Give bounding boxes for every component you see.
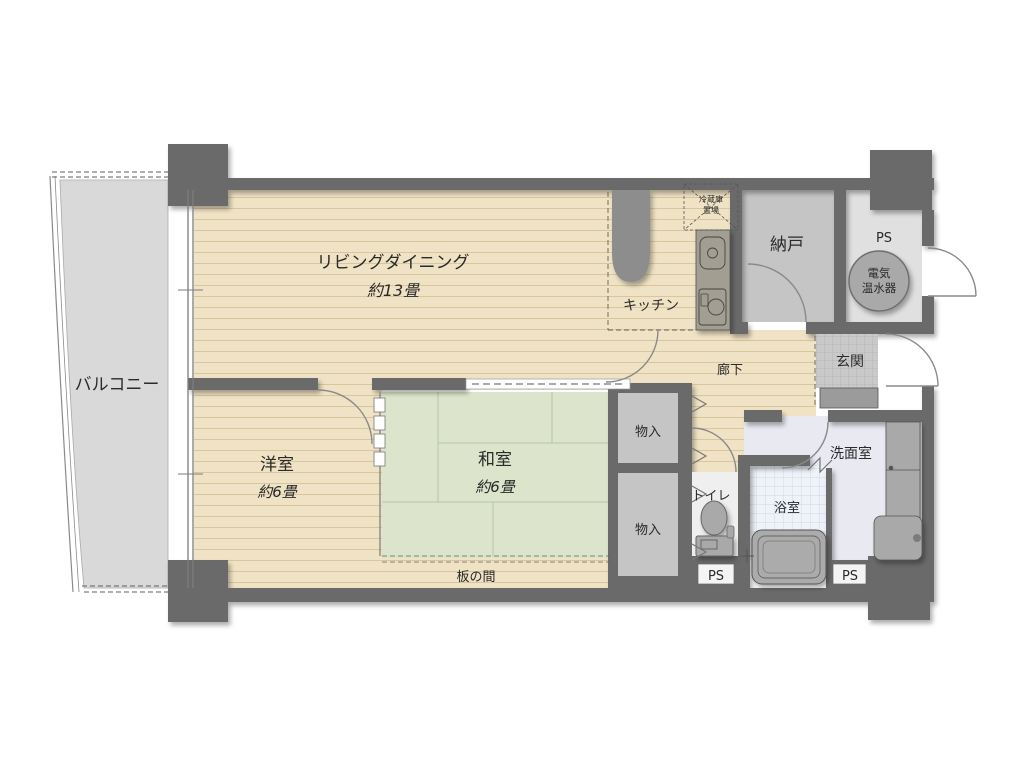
pantry-label: 納戸 [770,235,804,255]
wall-pantry-bottom-left [730,322,748,334]
japanese-room-floor [382,392,610,558]
wall-washroom-top-left [744,410,782,422]
living-dining-size: 約13畳 [367,281,420,300]
washroom-label: 洗面室 [830,445,872,462]
fridge-label-line2: 置場 [703,205,719,215]
fusuma-panel-4 [374,452,385,466]
entrance-label: 玄関 [836,353,864,370]
floor-plan-page: バルコニー リビングダイニング 約13畳 キッチン 冷蔵庫 置場 納戸 PS 電… [0,0,1024,768]
washer-drain [913,534,921,542]
wall-pantry-bottom-right [806,322,934,334]
itanoma-floor [382,556,610,588]
ps-toilet-label: PS [708,569,724,584]
corridor-floor-upper [608,330,816,388]
wall-bottom [168,588,934,602]
toilet-bowl [701,501,727,535]
living-dining-label: リビングダイニング [317,253,470,273]
kitchen-partition-wall [612,190,650,282]
toilet-label: トイレ [691,489,730,504]
wall-kitchen-pantry [730,178,742,334]
toilet-tank [696,536,733,556]
kitchen-label: キッチン [623,298,679,314]
closet-top-label: 物入 [635,425,661,440]
door-arc-front-entrance [886,334,938,386]
ps-washroom-label: PS [842,569,858,584]
wall-right-a [922,210,934,246]
wall-ld-west [188,378,318,390]
vanity-handle [889,466,894,471]
fusuma-panel-1 [374,398,385,412]
fusuma-panel-3 [374,434,385,448]
wall-top [168,178,934,190]
floor-plan-drawing: バルコニー リビングダイニング 約13畳 キッチン 冷蔵庫 置場 納戸 PS 電… [0,0,1024,768]
fusuma-panel-2 [374,416,385,430]
wall-pantry-ps [834,178,846,334]
bath-label: 浴室 [774,500,800,516]
water-heater-label-line1: 電気 [868,266,891,280]
wall-right-c [922,386,934,588]
balcony-top-boundary [52,172,168,177]
japanese-room-size: 約6畳 [475,478,516,496]
wall-bath-left [738,455,750,590]
column-top-left [168,144,228,206]
shoe-cabinet [820,388,878,408]
water-heater-label-line2: 温水器 [862,281,897,295]
bath-floor [750,466,828,532]
wall-ld-mid [372,378,466,390]
itanoma-label: 板の間 [456,570,495,585]
balcony-label: バルコニー [75,375,160,395]
door-arc-ps-hatch [928,248,976,296]
western-room-size: 約6畳 [257,483,298,501]
ps-top-label: PS [876,231,892,246]
toilet-handle [727,526,734,538]
western-room-label: 洋室 [260,455,294,475]
wall-washroom-top-right [828,410,922,422]
fridge-label-line1: 冷蔵庫 [699,194,723,204]
wall-right-b [922,296,934,334]
corridor-label: 廊下 [717,362,743,378]
closet-bottom-label: 物入 [635,523,661,538]
japanese-room-label: 和室 [478,450,512,470]
